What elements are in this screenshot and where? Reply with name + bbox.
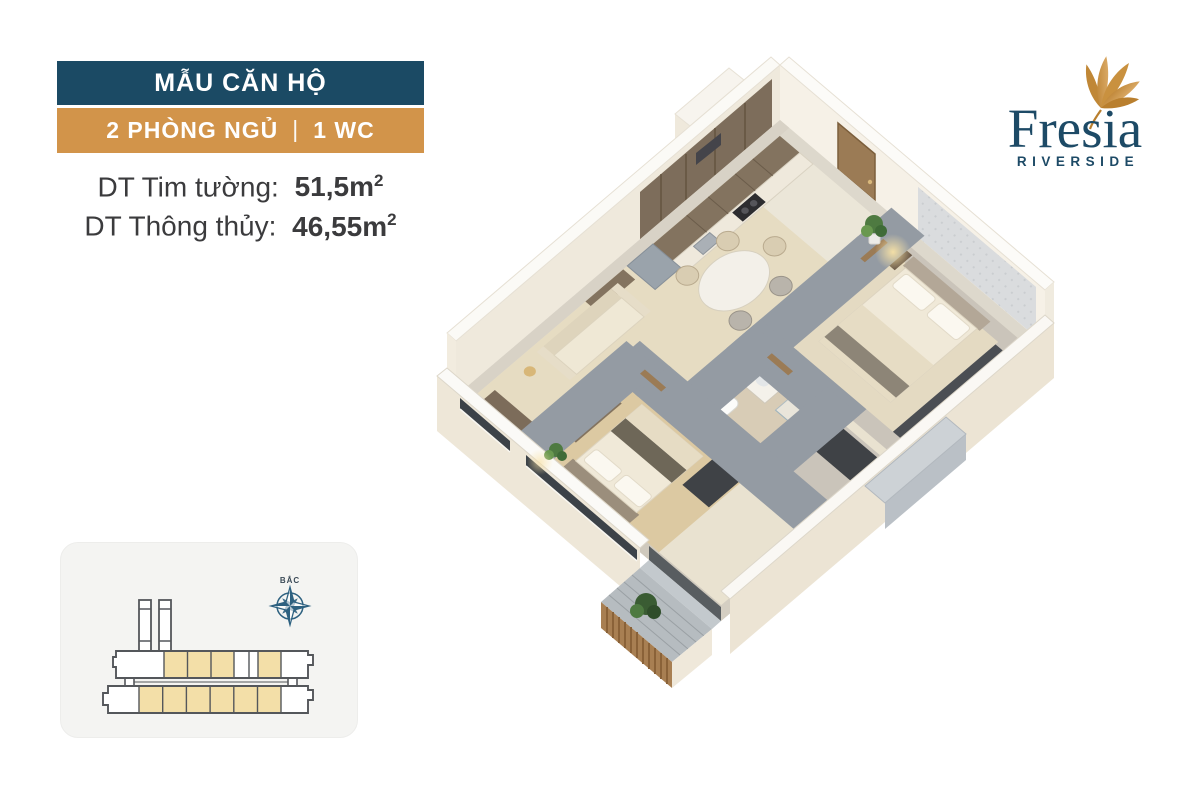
wc-label: 1 WC (313, 117, 375, 144)
area-gross: DT Tim tường: 51,5m2 (57, 164, 424, 203)
header-block: MẪU CĂN HỘ 2 PHÒNG NGỦ | 1 WC DT Tim tườ… (57, 61, 424, 243)
compass-north-label: BẮC (280, 576, 300, 585)
sitemap-card: BẮC (60, 542, 358, 738)
tower-stubs (139, 600, 171, 651)
bedrooms-label: 2 PHÒNG NGỦ (106, 117, 278, 144)
area-net: DT Thông thủy: 46,55m2 (57, 203, 424, 242)
config-separator: | (292, 116, 299, 143)
door-knob-icon (868, 180, 872, 184)
bedside-lamp-glow (875, 234, 911, 270)
highlighted-unit-top2 (258, 651, 281, 678)
model-banner-label: MẪU CĂN HỘ (154, 69, 327, 98)
area-gross-value: 51,5m (295, 171, 374, 202)
area-gross-label: DT Tim tường: (98, 171, 279, 202)
living-lamp-glow (527, 449, 553, 475)
area-net-value: 46,55m (292, 211, 387, 242)
model-banner: MẪU CĂN HỘ (57, 61, 424, 105)
compass-icon: BẮC (271, 576, 309, 625)
highlighted-units-top (164, 651, 234, 678)
page: MẪU CĂN HỘ 2 PHÒNG NGỦ | 1 WC DT Tim tườ… (0, 0, 1200, 800)
area-net-label: DT Thông thủy: (84, 211, 276, 242)
floorplan-3d-render (410, 50, 1110, 750)
area-specs: DT Tim tường: 51,5m2 DT Thông thủy: 46,5… (57, 164, 424, 243)
sitemap-diagram: BẮC (61, 543, 359, 739)
floorplate (456, 120, 1045, 621)
area-gross-sup: 2 (374, 171, 383, 190)
config-banner: 2 PHÒNG NGỦ | 1 WC (57, 108, 424, 153)
area-net-sup: 2 (387, 210, 396, 229)
